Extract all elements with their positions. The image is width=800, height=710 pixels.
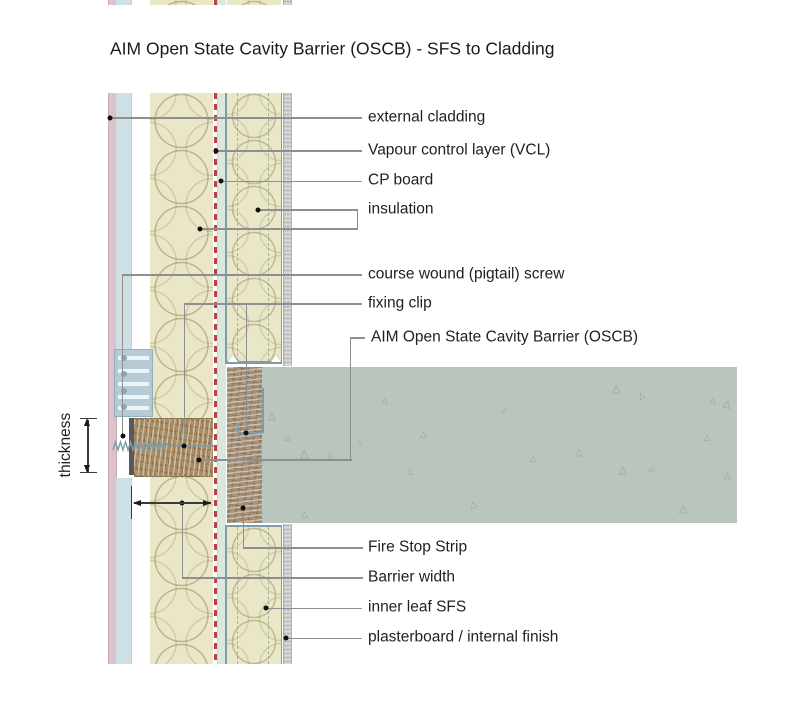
aggregate-triangle-icon: △: [679, 504, 687, 515]
pigtail-screw-icon: [110, 439, 216, 453]
fixing-clip-icon: [237, 432, 263, 434]
label-cp-board: CP board: [368, 171, 433, 189]
aggregate-triangle-icon: △: [382, 397, 388, 405]
stud-lip-icon: [271, 355, 281, 362]
aggregate-triangle-icon: △: [268, 412, 276, 422]
insulation-outer-upper: [150, 93, 213, 418]
leader-dot: [107, 116, 112, 121]
label-inner-leaf-sfs: inner leaf SFS: [368, 598, 466, 616]
leader-fixing-clip-v1: [184, 303, 185, 446]
label-external-cladding: external cladding: [368, 108, 485, 126]
leader-vcl: [216, 150, 362, 151]
leader-external-cladding: [110, 117, 362, 118]
barrier-width-ext-line: [131, 486, 132, 519]
leader-dot: [218, 179, 223, 184]
leader-dot: [213, 149, 218, 154]
thickness-ext-top: [80, 418, 97, 419]
aggregate-triangle-icon: △: [284, 433, 292, 442]
top-edge-insulation-inner: [227, 0, 281, 5]
leader-plasterboard: [286, 638, 362, 639]
insulation-dash-line: [268, 93, 269, 361]
barrier-width-dim-line: [134, 502, 211, 503]
external-cladding-panel-upper: [115, 93, 132, 349]
stud-lip-icon: [228, 355, 238, 362]
leader-oscb-stub: [350, 337, 365, 338]
aggregate-triangle-icon: △: [407, 468, 413, 476]
thickness-ext-bottom: [80, 472, 97, 473]
arrow-up-icon: [84, 418, 90, 426]
label-barrier-width: Barrier width: [368, 568, 455, 586]
label-pigtail-screw: course wound (pigtail) screw: [368, 265, 564, 283]
leader-dot: [182, 444, 187, 449]
label-oscb: AIM Open State Cavity Barrier (OSCB): [371, 328, 638, 346]
aggregate-triangle-icon: △: [636, 390, 646, 401]
aggregate-triangle-icon: △: [648, 464, 657, 474]
aggregate-triangle-icon: △: [722, 399, 732, 411]
top-edge-cladding-panel: [115, 0, 132, 5]
leader-cp-board: [221, 181, 362, 182]
top-edge-insulation-outer: [150, 0, 213, 5]
leader-dot: [241, 506, 246, 511]
leader-pigtail-h: [122, 274, 362, 275]
aggregate-triangle-icon: △: [357, 439, 362, 446]
aggregate-triangle-icon: △: [469, 499, 478, 509]
insulation-inner-upper: [227, 93, 281, 361]
leader-dot: [244, 431, 249, 436]
leader-dot: [284, 636, 289, 641]
fixing-clip-icon: [237, 424, 239, 433]
leader-fixing-clip-v2: [246, 303, 247, 433]
external-cladding-panel-lower: [115, 478, 132, 664]
leader-dot: [264, 606, 269, 611]
cladding-bracket: [114, 349, 153, 417]
oscb-detail-drawing: AIM Open State Cavity Barrier (OSCB) - S…: [0, 0, 800, 710]
top-edge-plasterboard: [283, 0, 293, 5]
leader-fixing-clip-h: [184, 303, 362, 304]
leader-insulation-a: [258, 209, 358, 210]
leader-fire-stop-v: [243, 508, 244, 548]
label-thickness: thickness: [57, 413, 75, 478]
leader-barrier-width-h: [182, 577, 363, 578]
drawing-title: AIM Open State Cavity Barrier (OSCB) - S…: [110, 39, 554, 60]
leader-dot: [196, 458, 201, 463]
insulation-dash-line: [237, 527, 238, 664]
aggregate-triangle-icon: △: [301, 510, 308, 519]
leader-insulation-join: [357, 209, 358, 229]
aggregate-triangle-icon: △: [704, 434, 710, 442]
aggregate-triangle-icon: △: [530, 455, 536, 463]
label-fixing-clip: fixing clip: [368, 294, 432, 312]
sfs-stud-web-left-lower: [225, 527, 227, 664]
arrow-right-icon: [203, 500, 211, 506]
arrow-left-icon: [133, 500, 141, 506]
aggregate-triangle-icon: △: [575, 448, 583, 458]
label-vcl: Vapour control layer (VCL): [368, 141, 550, 159]
top-edge-cp-board: [217, 0, 226, 5]
leader-fire-stop-h: [243, 547, 363, 548]
aggregate-triangle-icon: △: [619, 466, 627, 476]
plasterboard-lower: [283, 524, 293, 664]
fixing-clip-icon: [262, 388, 264, 433]
leader-insulation-b: [200, 228, 358, 229]
label-plasterboard: plasterboard / internal finish: [368, 628, 558, 646]
fire-stop-strip: [227, 367, 263, 523]
insulation-dash-line: [237, 93, 238, 361]
leader-oscb-v: [350, 337, 351, 460]
aggregate-triangle-icon: △: [612, 384, 620, 395]
aggregate-triangle-icon: △: [724, 471, 731, 480]
leader-dot: [120, 433, 125, 438]
leader-dot: [198, 227, 203, 232]
aggregate-triangle-icon: △: [710, 397, 716, 405]
leader-pigtail-v: [122, 274, 123, 435]
leader-dot: [256, 208, 261, 213]
label-insulation: insulation: [368, 200, 434, 218]
sfs-stud-web-left-upper: [225, 93, 227, 361]
slab: △△△△△△△△△△△△△△△△△△△△△△: [262, 367, 737, 523]
label-fire-stop-strip: Fire Stop Strip: [368, 538, 467, 556]
aggregate-triangle-icon: △: [420, 430, 427, 439]
aggregate-triangle-icon: △: [502, 407, 507, 414]
leader-oscb-h: [199, 459, 352, 460]
leader-inner-leaf: [266, 608, 362, 609]
leader-barrier-width-v: [182, 503, 183, 578]
